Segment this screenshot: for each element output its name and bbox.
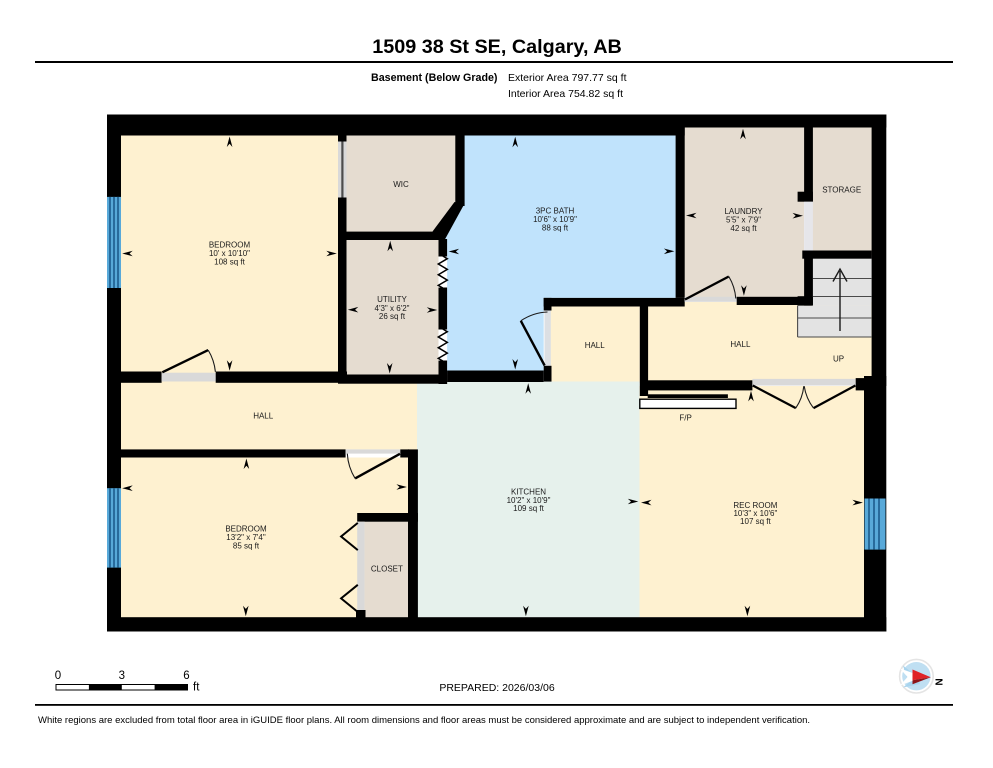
svg-text:N: N xyxy=(933,678,944,685)
svg-text:107 sq ft: 107 sq ft xyxy=(740,517,771,526)
svg-text:42 sq ft: 42 sq ft xyxy=(730,224,757,233)
svg-text:CLOSET: CLOSET xyxy=(371,565,403,574)
svg-text:HALL: HALL xyxy=(730,340,751,349)
svg-text:WIC: WIC xyxy=(393,180,409,189)
svg-text:HALL: HALL xyxy=(585,341,606,350)
svg-text:HALL: HALL xyxy=(253,411,274,420)
svg-text:0: 0 xyxy=(55,670,61,682)
svg-text:Exterior Area 797.77 sq ft: Exterior Area 797.77 sq ft xyxy=(508,72,627,84)
svg-text:PREPARED: 2026/03/06: PREPARED: 2026/03/06 xyxy=(439,682,555,694)
svg-text:85 sq ft: 85 sq ft xyxy=(233,542,260,551)
svg-text:White regions are excluded fro: White regions are excluded from total fl… xyxy=(38,715,810,726)
svg-text:108 sq ft: 108 sq ft xyxy=(214,258,245,267)
svg-text:ft: ft xyxy=(193,682,200,694)
svg-text:UP: UP xyxy=(833,354,844,363)
svg-text:3: 3 xyxy=(119,670,125,682)
svg-text:88 sq ft: 88 sq ft xyxy=(542,224,569,233)
svg-text:F/P: F/P xyxy=(679,414,691,423)
svg-text:Basement (Below Grade): Basement (Below Grade) xyxy=(371,72,498,84)
svg-text:109 sq ft: 109 sq ft xyxy=(513,504,544,513)
svg-text:STORAGE: STORAGE xyxy=(822,185,861,194)
svg-text:Interior Area 754.82 sq ft: Interior Area 754.82 sq ft xyxy=(508,88,623,100)
svg-text:6: 6 xyxy=(183,670,189,682)
svg-text:UTILITY: UTILITY xyxy=(377,295,407,304)
svg-text:26 sq ft: 26 sq ft xyxy=(379,312,406,321)
svg-text:1509 38 St SE, Calgary, AB: 1509 38 St SE, Calgary, AB xyxy=(372,36,622,58)
